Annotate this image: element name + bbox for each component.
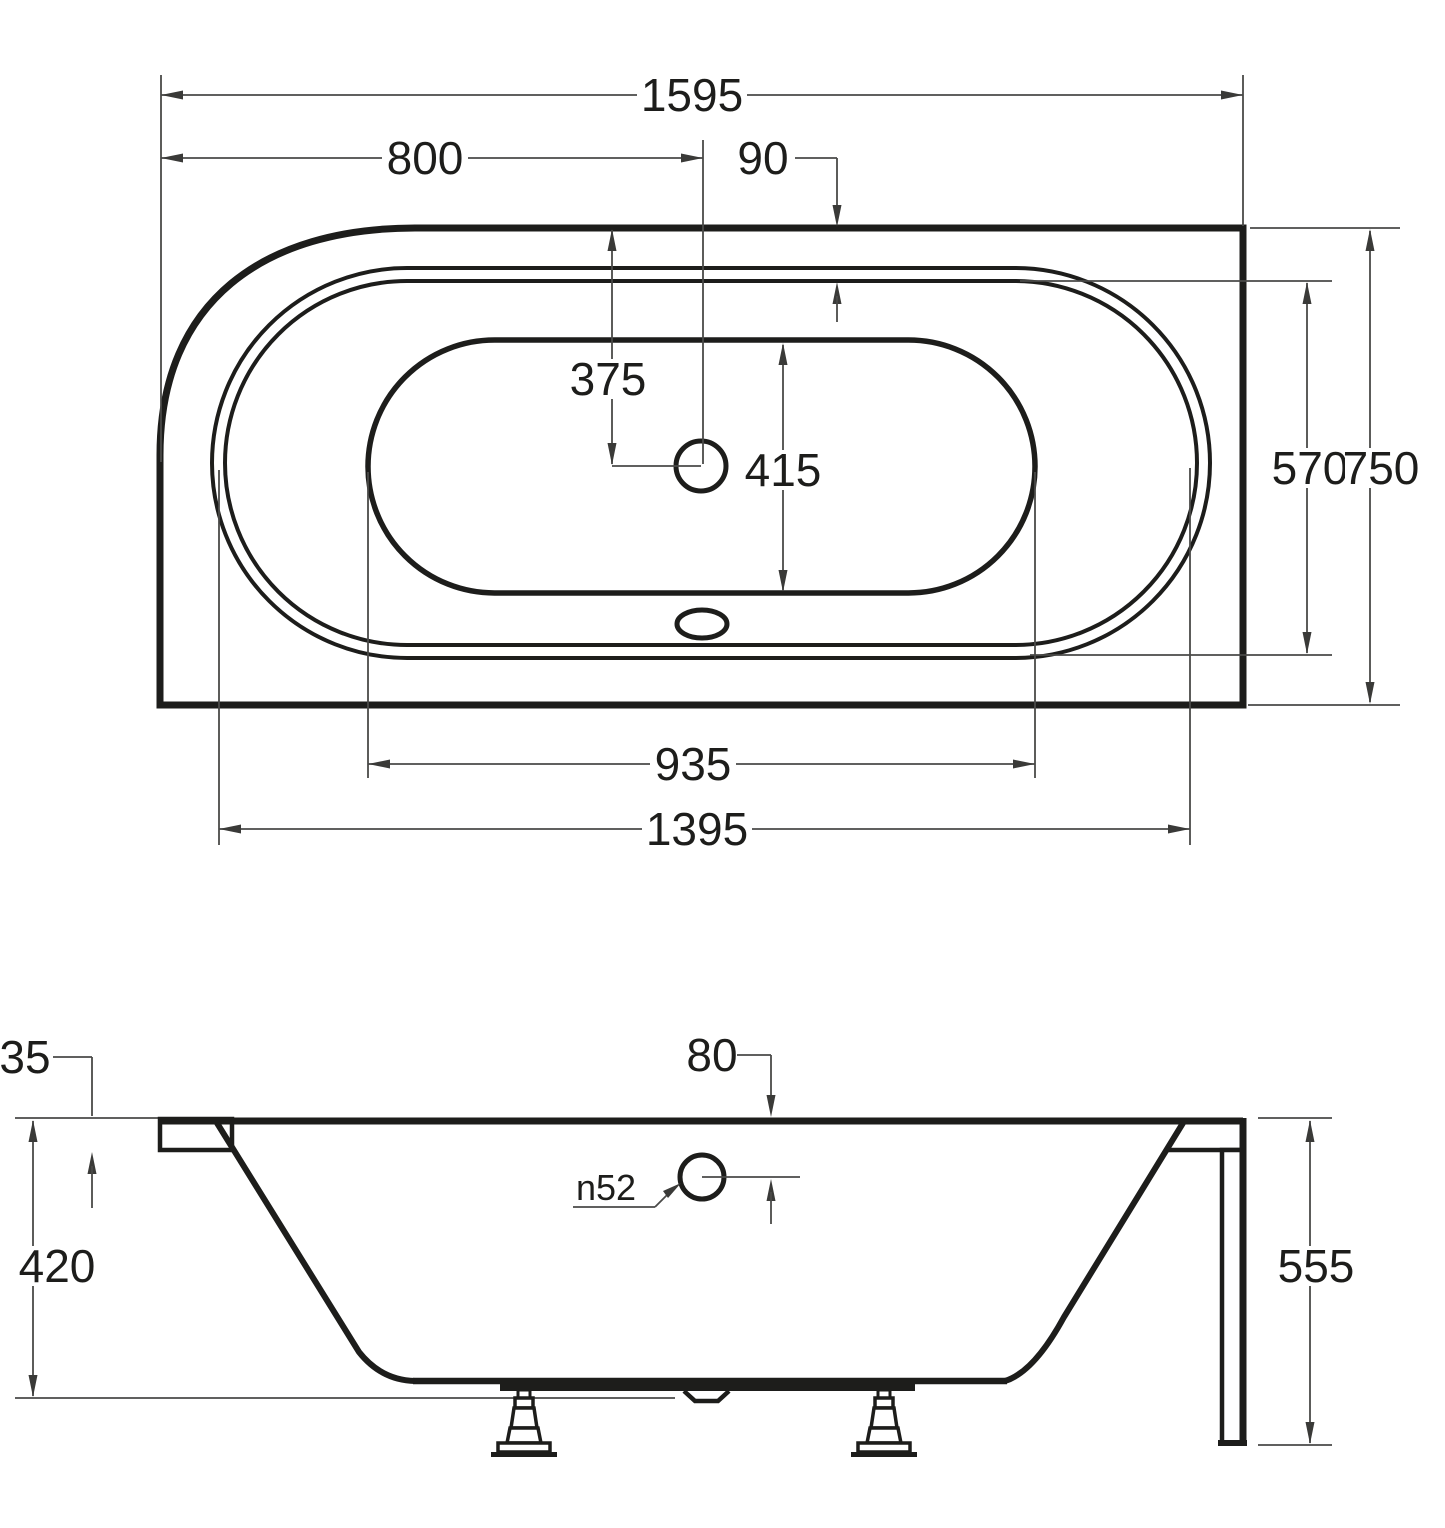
arrowhead: [29, 1375, 38, 1397]
technical-drawing: 1595 800 90 375: [0, 0, 1445, 1528]
foot-plate: [858, 1443, 910, 1452]
dim-label: 1395: [646, 803, 748, 855]
arrowhead: [1306, 1120, 1315, 1142]
dim-label: 420: [19, 1240, 96, 1292]
dim-label: 570: [1272, 442, 1349, 494]
right-wall-profile: [1005, 1123, 1183, 1381]
drain-recess: [684, 1391, 729, 1401]
arrowhead: [1013, 760, 1035, 769]
support-frame: [500, 1380, 915, 1391]
dim-shell-height: 420: [14, 1120, 100, 1397]
arrowhead: [161, 91, 183, 100]
arrowhead: [1168, 825, 1190, 834]
arrowhead: [1303, 282, 1312, 304]
arrowhead: [29, 1120, 38, 1142]
top-view: 1595 800 90 375: [160, 69, 1419, 855]
dim-label: 555: [1278, 1240, 1355, 1292]
arrowhead: [161, 154, 183, 163]
arrowhead: [1303, 632, 1312, 654]
foot-base: [491, 1452, 557, 1457]
dim-label: 80: [686, 1029, 737, 1081]
dim-label: 935: [655, 738, 732, 790]
dim-label: 1595: [641, 69, 743, 121]
arrowhead: [1221, 91, 1243, 100]
foot-base: [851, 1452, 917, 1457]
dim-overflow-diameter: n52: [573, 1167, 681, 1208]
dim-total-height: 555: [1258, 1118, 1360, 1445]
overflow-hole: [677, 610, 727, 638]
dim-label: 750: [1343, 442, 1420, 494]
foot-cone-upper: [511, 1408, 537, 1428]
foot-cone-lower: [867, 1428, 901, 1443]
dim-label: 415: [745, 444, 822, 496]
foot-cone-lower: [507, 1428, 541, 1443]
adjustable-foot: [851, 1390, 917, 1457]
left-wall-profile: [217, 1123, 415, 1381]
dim-label: 375: [570, 353, 647, 405]
arrowhead: [1366, 229, 1375, 251]
dim-rim-lip-height: 35: [0, 1031, 97, 1208]
foot-cone-upper: [871, 1408, 897, 1428]
arrowhead: [368, 760, 390, 769]
arrowhead: [767, 1095, 776, 1117]
arrowhead: [833, 205, 842, 227]
dim-label: n52: [576, 1167, 636, 1208]
arrowhead: [219, 825, 241, 834]
arrowhead: [1306, 1422, 1315, 1444]
dim-label: 800: [387, 132, 464, 184]
adjustable-foot: [491, 1390, 557, 1457]
dim-label: 35: [0, 1031, 51, 1083]
arrowhead: [1366, 682, 1375, 704]
side-view: 35 420 80 n52: [0, 1029, 1360, 1457]
dim-label: 90: [737, 132, 788, 184]
foot-plate: [498, 1443, 550, 1452]
arrowhead: [681, 154, 703, 163]
